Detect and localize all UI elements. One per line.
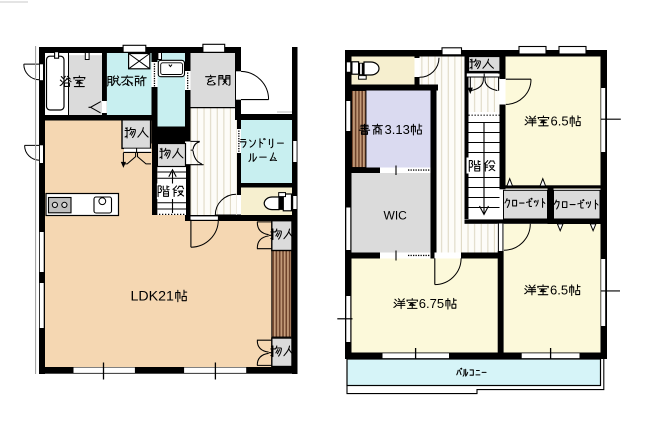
svg-text:6.5: 6.5: [551, 114, 569, 129]
svg-text:WIC: WIC: [384, 209, 408, 223]
svg-text:6.5: 6.5: [550, 283, 568, 298]
svg-text:3.13: 3.13: [385, 122, 410, 137]
svg-text:6.75: 6.75: [419, 296, 444, 311]
svg-text:LDK21: LDK21: [131, 289, 174, 305]
